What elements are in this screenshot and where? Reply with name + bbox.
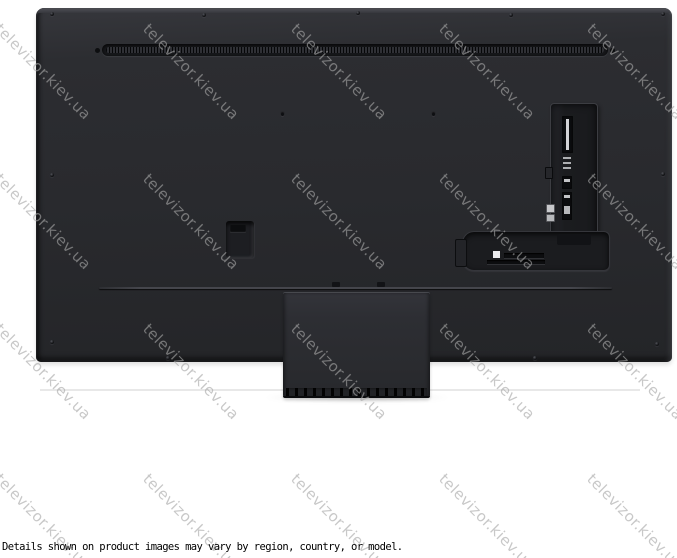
- port-slot: [504, 253, 544, 258]
- port-slot: [562, 192, 572, 220]
- vent-end-hole: [95, 48, 100, 53]
- port-label-marks: [563, 157, 571, 172]
- bottom-groove: [99, 287, 612, 289]
- port-marker: [493, 251, 500, 258]
- disclaimer-text: Details shown on product images may vary…: [2, 541, 403, 553]
- port-label-marks: [564, 206, 570, 214]
- port-slot: [487, 260, 545, 264]
- cable-clip: [546, 214, 555, 222]
- port-slot: [562, 176, 572, 189]
- screw-hole: [50, 340, 54, 344]
- side-port-panel: [550, 103, 598, 250]
- product-image-canvas: televizor.kiev.uatelevizor.kiev.uatelevi…: [0, 0, 677, 558]
- tv-stand: [283, 292, 430, 398]
- power-socket: [230, 225, 246, 233]
- port-label-marks: [564, 195, 570, 198]
- stand-base-vents: [286, 388, 427, 396]
- power-connector-recess: [226, 221, 254, 258]
- vent-perforations: [106, 47, 604, 53]
- screw-hole: [509, 13, 513, 17]
- watermark-text: televizor.kiev.ua: [583, 470, 677, 558]
- port-contact: [566, 119, 569, 150]
- cable-clip: [545, 167, 553, 179]
- tv-top-bevel: [38, 9, 670, 13]
- screw-hole: [50, 173, 54, 177]
- vesa-mount-hole: [432, 113, 435, 116]
- screw-hole: [202, 13, 206, 17]
- port-slot: [562, 116, 573, 153]
- vesa-mount-hole: [281, 113, 284, 116]
- watermark-text: televizor.kiev.ua: [435, 470, 538, 558]
- stand-mount-notch: [377, 282, 385, 287]
- stand-base-edge: [283, 396, 430, 398]
- screw-hole: [50, 12, 54, 16]
- cable-clip: [546, 204, 555, 213]
- stand-base: [286, 388, 427, 396]
- port-label-marks: [564, 179, 570, 182]
- stand-mount-notch: [332, 282, 340, 287]
- screw-hole: [661, 172, 665, 176]
- screw-hole: [655, 342, 659, 346]
- vent-grille: [102, 44, 608, 56]
- bottom-port-panel: [462, 231, 610, 271]
- screw-hole: [356, 11, 360, 15]
- screw-hole: [166, 356, 170, 360]
- panel-recess: [557, 234, 591, 245]
- bracket-tab: [455, 239, 467, 267]
- screw-hole: [661, 12, 665, 16]
- vent-end-hole: [610, 48, 615, 53]
- screw-hole: [533, 356, 537, 360]
